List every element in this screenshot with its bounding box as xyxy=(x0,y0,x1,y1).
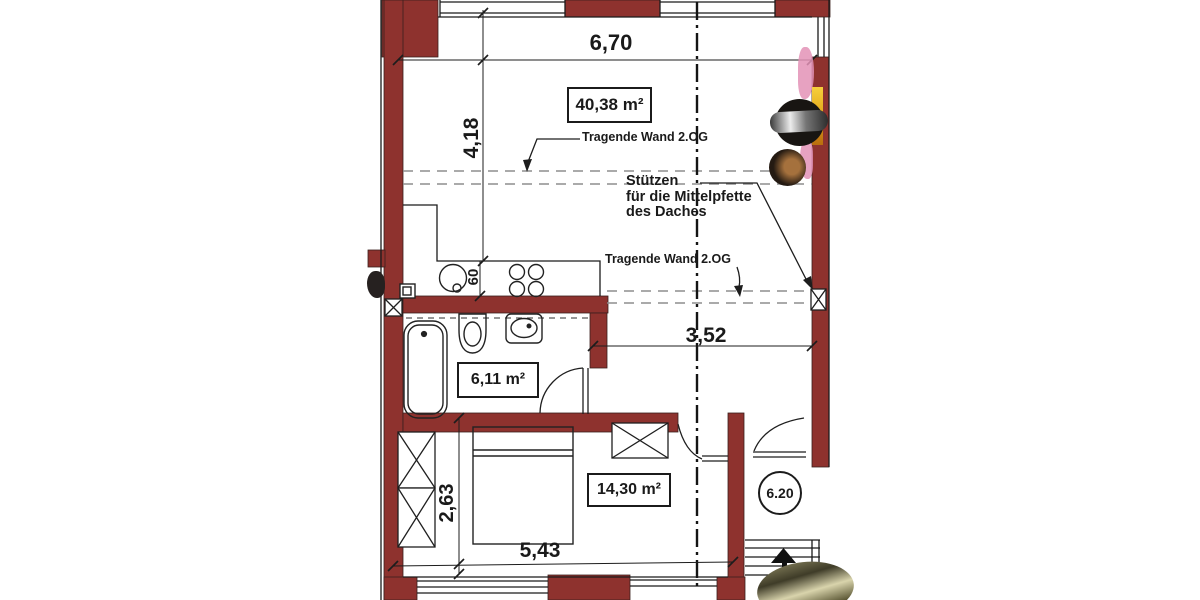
bath-door-leaf xyxy=(583,368,588,414)
bathtub-inner xyxy=(408,325,443,414)
wall-bottom-middle xyxy=(548,575,630,600)
area-label-living: 40,38 m² xyxy=(567,87,652,123)
wardrobe-upper xyxy=(398,432,435,488)
leader-load-wall-lower xyxy=(737,267,740,287)
round-knob-artifact xyxy=(769,149,806,186)
bath-sink-drain xyxy=(527,324,531,328)
wardrobe-lower xyxy=(398,488,435,547)
dimension-height-left: 4,18 xyxy=(461,108,483,168)
wall-top-right xyxy=(775,0,830,17)
dimension-width-top: 6,70 xyxy=(563,30,659,56)
note-roof-supports-line1: Stützen xyxy=(626,174,752,190)
bedroom-furniture xyxy=(473,427,573,544)
wall-bath-right xyxy=(590,313,607,368)
dimension-bedroom-width: 5,43 xyxy=(498,539,582,563)
furniture-x-box xyxy=(612,423,668,458)
kitchen-counter-outline xyxy=(403,205,600,296)
window-top-2 xyxy=(660,0,775,17)
note-roof-supports-line3: des Daches xyxy=(626,205,752,221)
wall-left-stub xyxy=(368,250,385,267)
window-bottom-1 xyxy=(417,581,548,593)
dimension-counter-depth: 60 xyxy=(463,257,483,297)
window-top-1 xyxy=(440,0,565,17)
note-load-wall-lower: Tragende Wand 2.OG xyxy=(605,252,731,266)
landing-door-leaf xyxy=(753,452,806,457)
area-label-bath: 6,11 m² xyxy=(457,362,539,398)
bed xyxy=(473,427,573,544)
bedroom-door-leaf xyxy=(702,456,728,461)
bed-pillow-lines xyxy=(473,450,573,456)
bedroom-door-arc xyxy=(678,424,702,459)
note-roof-supports-line2: für die Mittelpfette xyxy=(626,190,752,206)
column-marker-left xyxy=(385,299,402,316)
stove-burner xyxy=(529,282,544,297)
dark-clip-artifact xyxy=(367,271,385,298)
wall-top-middle xyxy=(565,0,660,17)
stove-burner xyxy=(529,265,544,280)
toilet-bowl xyxy=(464,322,481,346)
wall-kitchen-bath xyxy=(403,296,608,313)
wall-bedroom-right xyxy=(728,413,744,600)
note-load-wall-upper: Tragende Wand 2.OG xyxy=(582,130,708,144)
room-number-badge: 6.20 xyxy=(758,471,802,515)
landing-door-arc xyxy=(754,418,804,451)
column-marker-right xyxy=(811,289,826,310)
note-roof-supports: Stützen für die Mittelpfette des Daches xyxy=(626,174,752,221)
window-bottom-2 xyxy=(630,580,717,586)
wall-bottom-left xyxy=(384,577,417,600)
wall-bottom-right xyxy=(717,577,745,600)
dimension-bedroom-height: 2,63 xyxy=(436,473,458,533)
leader-load-wall-upper xyxy=(528,139,580,162)
bathtub-drain xyxy=(422,332,427,337)
dimension-hall-width: 3,52 xyxy=(664,324,748,348)
area-label-bedroom: 14,30 m² xyxy=(587,473,671,507)
stove-burner xyxy=(510,282,525,297)
toilet xyxy=(459,314,486,353)
wall-switch-box xyxy=(400,284,415,298)
bath-door-arc xyxy=(540,368,583,413)
bath-sink-basin xyxy=(511,319,537,338)
floor-plan: 6,70 4,18 40,38 m² Tragende Wand 2.OG St… xyxy=(0,0,1200,600)
stove-burner xyxy=(510,265,525,280)
magnet-clip-artifact xyxy=(769,109,828,133)
